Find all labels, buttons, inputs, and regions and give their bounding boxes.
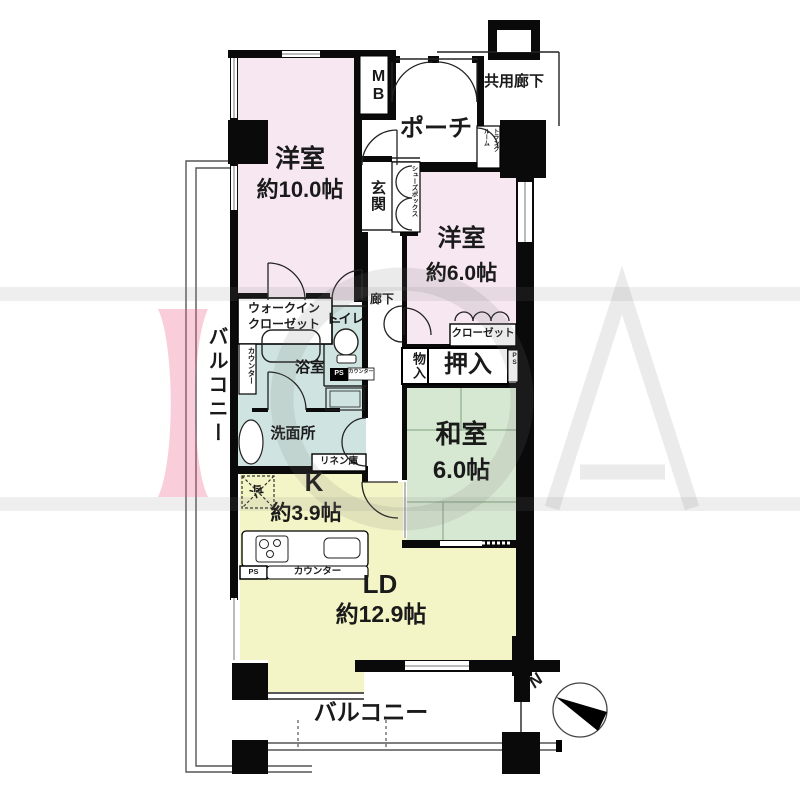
hallway-label: 廊下 xyxy=(370,293,394,306)
bedroom-main-size: 約10.0帖 xyxy=(238,178,362,202)
living-dining-name: LD xyxy=(348,570,412,599)
floor-plan: 洋室 約10.0帖 洋室 約6.0帖 ポーチ 共用廊下 MB 玄関 シューズボッ… xyxy=(0,0,800,800)
stove xyxy=(256,536,288,562)
kitchen-sink xyxy=(324,538,360,558)
balcony-left-label: バルコニー xyxy=(199,326,227,486)
balcony-bottom-label: バルコニー xyxy=(296,700,446,725)
ps-right-label: PS xyxy=(508,352,518,382)
living-dining-size: 約12.9帖 xyxy=(306,602,456,627)
ps-toilet-label: PS xyxy=(330,370,348,378)
japanese-room-size: 6.0帖 xyxy=(407,458,516,484)
walk-in-closet-label: ウォークイン クローゼット xyxy=(238,301,330,332)
shoe-box-label: シューズボックス xyxy=(403,165,417,231)
japanese-room-name: 和室 xyxy=(407,420,516,449)
toilet-bowl xyxy=(334,329,358,355)
meter-box-label: MB xyxy=(362,60,387,112)
kitchen-size: 約3.9帖 xyxy=(248,502,364,525)
compass xyxy=(553,683,607,737)
oshiire-label: 押入 xyxy=(428,352,508,378)
storage-label: 物入 xyxy=(405,352,425,382)
closet-label: クローゼット xyxy=(450,328,516,340)
kitchen-name: K xyxy=(296,468,332,497)
bedroom-second-name: 洋室 xyxy=(407,226,516,252)
counter-side-label: カウンター xyxy=(241,347,255,393)
porch-label: ポーチ xyxy=(390,116,482,142)
entrance-label: 玄関 xyxy=(363,180,385,232)
railing-end-post xyxy=(556,740,562,752)
bedroom-main-name: 洋室 xyxy=(238,146,362,174)
counter-toilet-label: カウンター xyxy=(348,370,374,376)
ps-kitchen-label: PS xyxy=(240,568,267,576)
bedroom-second-area xyxy=(407,168,516,344)
toilet-tank xyxy=(337,355,356,363)
bedroom-second-size: 約6.0帖 xyxy=(407,262,516,285)
washroom-label: 洗面所 xyxy=(258,426,328,443)
common-corridor-label: 共用廊下 xyxy=(484,74,544,91)
elevator-shaft xyxy=(497,30,531,52)
linen-label: リネン庫 xyxy=(312,457,366,467)
toilet-label: トイレ xyxy=(324,312,366,326)
trunk-room-label: トランク ルーム xyxy=(478,128,499,168)
